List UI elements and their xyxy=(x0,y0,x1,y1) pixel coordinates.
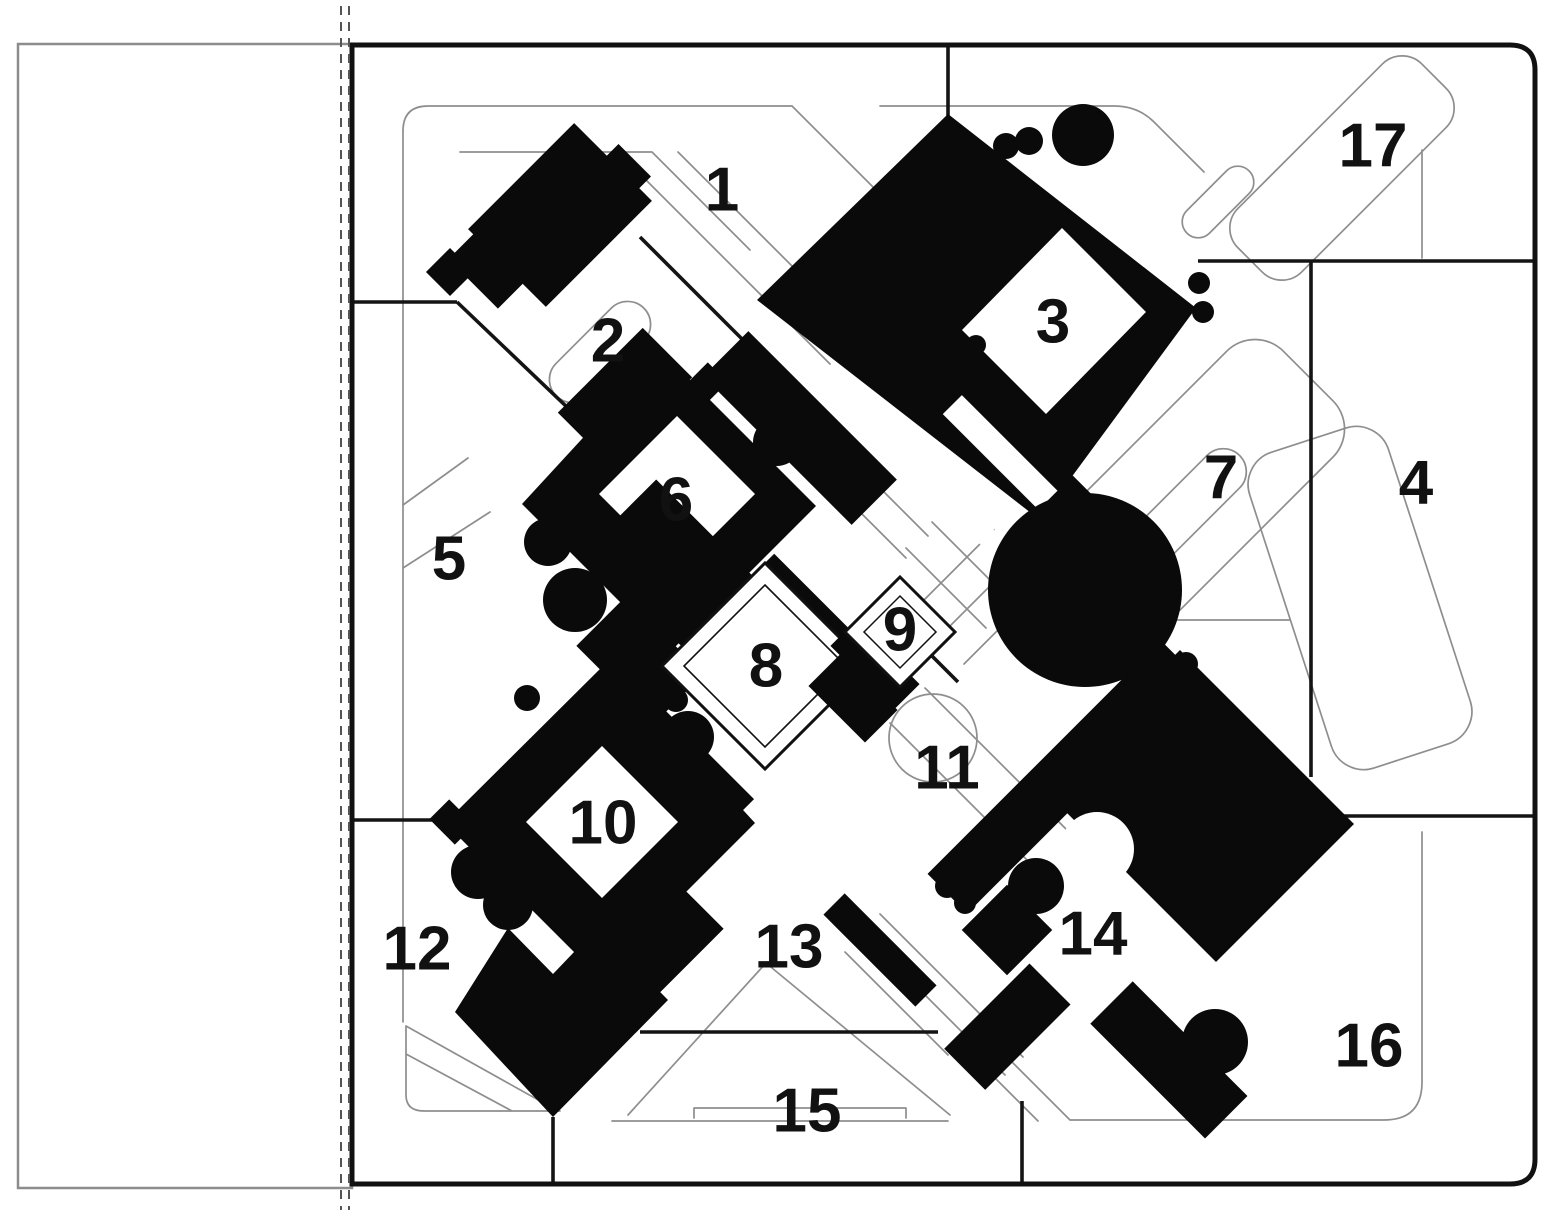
left-blank-panel xyxy=(18,44,352,1188)
zone-label-4: 4 xyxy=(1399,449,1434,518)
building-6-lobe-d xyxy=(753,418,801,466)
building-3-knob-e xyxy=(966,335,986,355)
zone-label-8: 8 xyxy=(749,632,783,701)
building-6-lobe-b xyxy=(543,568,607,632)
zone-label-3: 3 xyxy=(1036,288,1070,357)
zone-label-6: 6 xyxy=(659,466,693,535)
building-3-knob-a xyxy=(993,133,1019,159)
zone-label-5: 5 xyxy=(432,525,466,594)
zone-label-10: 10 xyxy=(569,789,638,858)
building-10-knob-a xyxy=(514,685,540,711)
building-3-knob-c xyxy=(1188,272,1210,294)
building-6-lobe-a xyxy=(524,518,572,566)
zone-label-16: 16 xyxy=(1335,1012,1404,1081)
zone-label-14: 14 xyxy=(1059,900,1128,969)
building-3-knob-d xyxy=(1192,301,1214,323)
zone-label-11: 11 xyxy=(914,734,980,803)
zone-label-7: 7 xyxy=(1204,444,1238,513)
building-3-knob-b xyxy=(1015,127,1043,155)
building-14-knob-a xyxy=(1145,666,1169,690)
zone-label-17: 17 xyxy=(1339,112,1408,181)
building-10-knob-b xyxy=(664,688,688,712)
building-14-knob-b xyxy=(1174,652,1198,676)
zone-label-13: 13 xyxy=(755,913,824,982)
zone-label-2: 2 xyxy=(591,307,625,376)
building-10-knob-c xyxy=(491,948,519,976)
zone-label-9: 9 xyxy=(883,596,917,665)
building-14-se-lobe xyxy=(1182,1009,1248,1075)
zone-label-15: 15 xyxy=(773,1077,842,1146)
building-10-lobe-b xyxy=(483,880,533,930)
building-14-knob-d xyxy=(954,892,976,914)
building-3-knob-f xyxy=(1044,411,1062,429)
site-plan-canvas: 1 2 3 4 5 6 7 8 9 10 11 12 13 14 15 16 1… xyxy=(0,0,1560,1213)
zone-label-1: 1 xyxy=(705,156,739,225)
building-14-knob-c xyxy=(935,874,959,898)
site-plan-figure: 1 2 3 4 5 6 7 8 9 10 11 12 13 14 15 16 1… xyxy=(0,0,1560,1213)
building-3-dome xyxy=(1052,104,1114,166)
zone-label-12: 12 xyxy=(383,915,452,984)
